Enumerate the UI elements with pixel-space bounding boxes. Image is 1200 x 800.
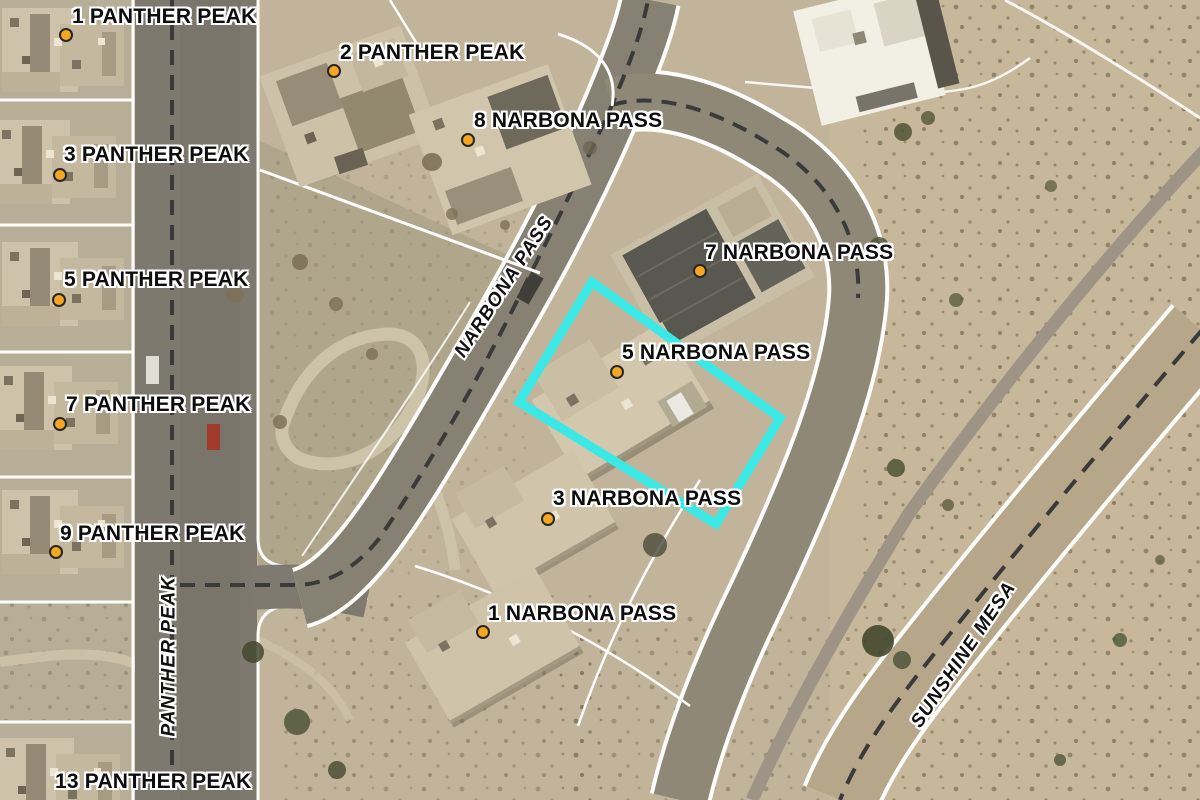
address-label: 7 PANTHER PEAK [66, 393, 250, 416]
address-label: 2 PANTHER PEAK [340, 41, 524, 64]
street-label-panther-peak: PANTHER PEAK [159, 582, 181, 737]
address-label: 9 PANTHER PEAK [60, 522, 244, 545]
address-marker[interactable] [49, 545, 63, 559]
address-marker[interactable] [693, 264, 707, 278]
address-label: 8 NARBONA PASS [474, 109, 662, 132]
address-label: 1 PANTHER PEAK [72, 5, 256, 28]
address-marker[interactable] [610, 365, 624, 379]
address-label: 5 PANTHER PEAK [64, 268, 248, 291]
address-marker[interactable] [461, 133, 475, 147]
address-marker[interactable] [541, 512, 555, 526]
address-label: 13 PANTHER PEAK [55, 770, 251, 793]
address-label: 3 NARBONA PASS [553, 487, 741, 510]
address-marker[interactable] [327, 64, 341, 78]
address-marker[interactable] [52, 293, 66, 307]
address-label: 1 NARBONA PASS [488, 602, 676, 625]
map-viewport[interactable]: 1 PANTHER PEAK 2 PANTHER PEAK 8 NARBONA … [0, 0, 1200, 800]
address-label: 7 NARBONA PASS [705, 241, 893, 264]
address-marker[interactable] [476, 625, 490, 639]
address-label: 3 PANTHER PEAK [64, 143, 248, 166]
address-marker[interactable] [53, 168, 67, 182]
address-label: 5 NARBONA PASS [622, 341, 810, 364]
address-marker[interactable] [53, 417, 67, 431]
address-marker[interactable] [59, 28, 73, 42]
